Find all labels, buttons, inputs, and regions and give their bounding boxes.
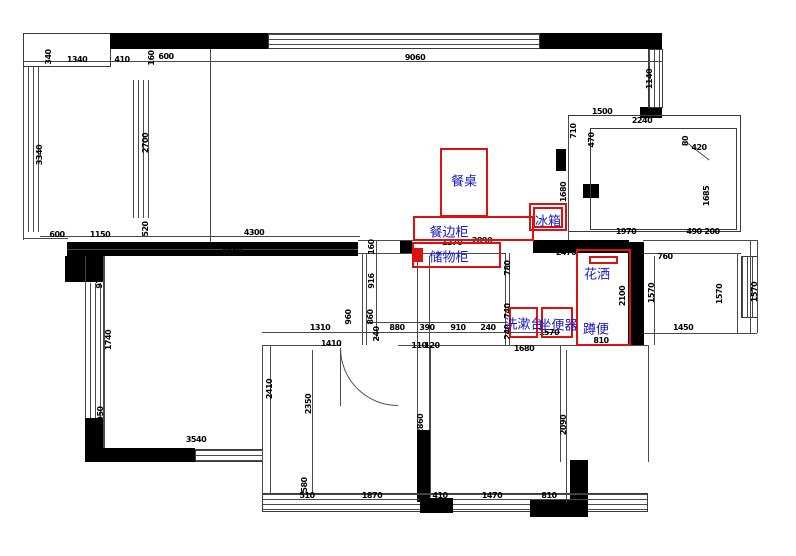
room-wall-line	[737, 253, 738, 333]
dimension-label: 410	[114, 56, 129, 64]
room-wall-line	[643, 333, 757, 334]
wall-segment	[530, 500, 588, 517]
dimension-label: 4850	[222, 247, 242, 255]
door-swing-arc	[340, 348, 398, 406]
dimension-label: 910	[450, 324, 465, 332]
dimension-label: 2470	[556, 249, 576, 257]
dimension-label: 1680	[560, 182, 568, 202]
dimension-label: 600	[49, 231, 64, 239]
room-wall-line	[643, 240, 757, 241]
window-hatch	[85, 283, 104, 418]
dimension-label: 1340	[67, 56, 87, 64]
dimension-label: 780	[504, 260, 512, 275]
shower-head-box[interactable]	[589, 256, 618, 264]
dimension-label: 1150	[90, 231, 110, 239]
dimension-label: 420	[691, 144, 706, 152]
shower-label: 花洒	[584, 269, 610, 282]
dimension-label: 1970	[616, 228, 636, 236]
dimension-label: 2090	[560, 415, 568, 435]
dimension-label: 760	[657, 253, 672, 261]
wall-segment	[540, 33, 662, 49]
dimension-label: 2860	[417, 414, 425, 434]
dimension-label: 1570	[648, 283, 656, 303]
dimension-label: 520	[142, 221, 150, 236]
dimension-label: 916	[368, 273, 376, 288]
dimension-line	[40, 236, 360, 237]
dimension-label: 200	[704, 228, 719, 236]
storage-cabinet-label: 储物柜	[429, 252, 468, 265]
dimension-label: 1500	[592, 108, 612, 116]
dimension-label: 2410	[266, 379, 274, 399]
dimension-label: 1570	[716, 284, 724, 304]
wall-segment	[417, 430, 430, 502]
window-hatch	[262, 493, 648, 512]
window-hatch	[268, 33, 540, 49]
dimension-label: 390	[419, 324, 434, 332]
dimension-label: 160	[148, 50, 156, 65]
room-wall-line	[210, 49, 211, 242]
dimension-label: 410	[432, 492, 447, 500]
dimension-label: 1685	[703, 186, 711, 206]
dimension-label: 1870	[362, 492, 382, 500]
dimension-label: 2700	[142, 133, 150, 153]
dimension-line	[312, 350, 313, 493]
dimension-label: 3340	[36, 145, 44, 165]
dimension-label: 1410	[321, 340, 341, 348]
dimension-label: 880	[389, 324, 404, 332]
dimension-label: 2350	[305, 394, 313, 414]
dimension-label: 1570	[751, 282, 759, 302]
storage-cabinet-marker[interactable]	[414, 248, 423, 262]
wall-segment	[110, 33, 268, 49]
dining-table-label: 餐桌	[451, 176, 477, 189]
wall-segment	[176, 42, 188, 49]
squat-toilet-label: 蹲便	[583, 324, 609, 337]
room-wall-line	[560, 345, 561, 462]
dimension-label: 490	[686, 228, 701, 236]
dimension-label: 240	[373, 326, 381, 341]
room-wall-line	[270, 345, 271, 495]
dimension-label: 960	[345, 309, 353, 324]
dimension-line	[376, 240, 377, 340]
dimension-label: 4300	[244, 229, 264, 237]
dimension-label: 1310	[310, 324, 330, 332]
top-right-room-inner	[590, 128, 737, 230]
dimension-label: 240	[480, 324, 495, 332]
dimension-label: 470	[588, 132, 596, 147]
door-leaf-line	[340, 348, 341, 406]
dimension-label: 810	[541, 492, 556, 500]
dimension-label: 80	[682, 136, 690, 146]
dimension-label: 510	[299, 492, 314, 500]
dimension-label: 1740	[105, 330, 113, 350]
floor-plan: 1340410160600906015002240420600115043004…	[0, 0, 796, 556]
dimension-label: 1470	[482, 492, 502, 500]
wall-segment	[420, 498, 453, 513]
dimension-label: 1140	[646, 69, 654, 89]
sideboard-label: 餐边柜	[429, 227, 468, 240]
dimension-label: 860	[367, 309, 375, 324]
dimension-label: 580	[301, 477, 309, 492]
dimension-label: 950	[97, 406, 105, 421]
dimension-label: 970	[96, 273, 104, 288]
wall-segment	[556, 149, 566, 171]
dimension-label: 1450	[673, 324, 693, 332]
room-wall-line	[648, 345, 649, 462]
room-wall-line	[430, 345, 431, 497]
wall-segment	[85, 418, 103, 450]
dimension-label: 9060	[405, 54, 425, 62]
room-wall-line	[85, 256, 86, 283]
dimension-label: 120	[424, 342, 439, 350]
toilet-label: 坐便器	[538, 320, 577, 333]
dimension-label: 710	[570, 123, 578, 138]
room-wall-line	[262, 345, 263, 495]
dimension-label: 600	[158, 53, 173, 61]
wall-segment	[400, 240, 412, 253]
fridge-label: 冰箱	[535, 216, 561, 229]
dimension-label: 3540	[186, 436, 206, 444]
dimension-label: 340	[45, 49, 53, 64]
dimension-line	[67, 249, 358, 250]
wall-segment	[85, 448, 195, 462]
dimension-label: 2240	[632, 117, 652, 125]
dimension-label: 1680	[514, 345, 534, 353]
window-hatch	[195, 449, 263, 462]
dimension-label: 160	[368, 239, 376, 254]
